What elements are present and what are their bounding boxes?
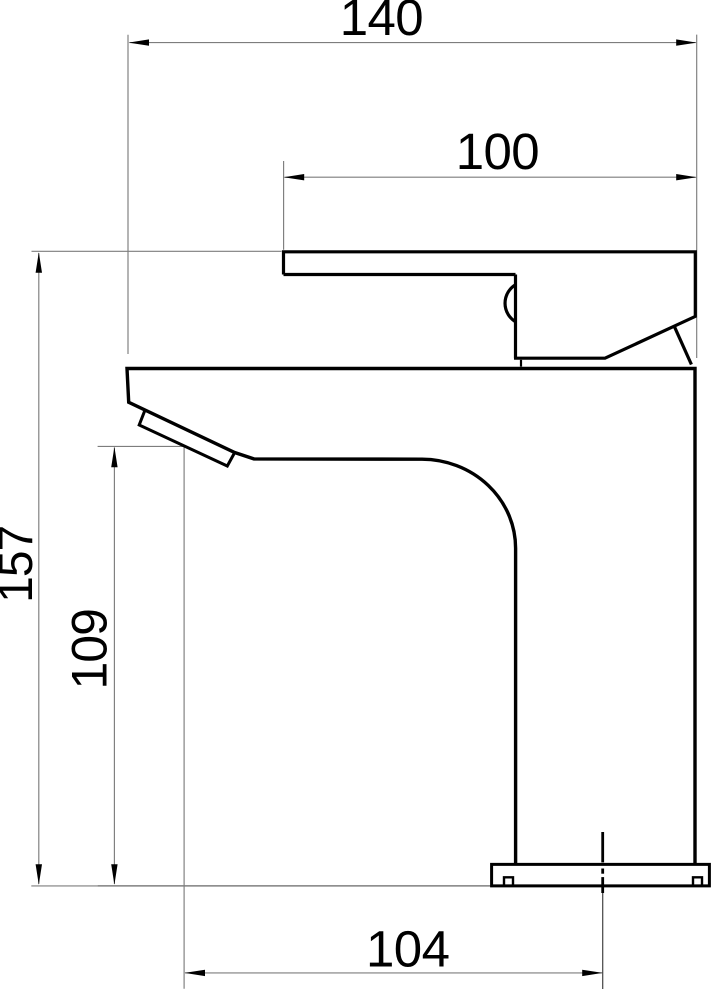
svg-text:109: 109 — [61, 609, 117, 689]
svg-text:100: 100 — [456, 123, 539, 180]
svg-text:104: 104 — [366, 921, 449, 978]
svg-text:140: 140 — [340, 0, 423, 46]
svg-text:157: 157 — [0, 526, 43, 603]
